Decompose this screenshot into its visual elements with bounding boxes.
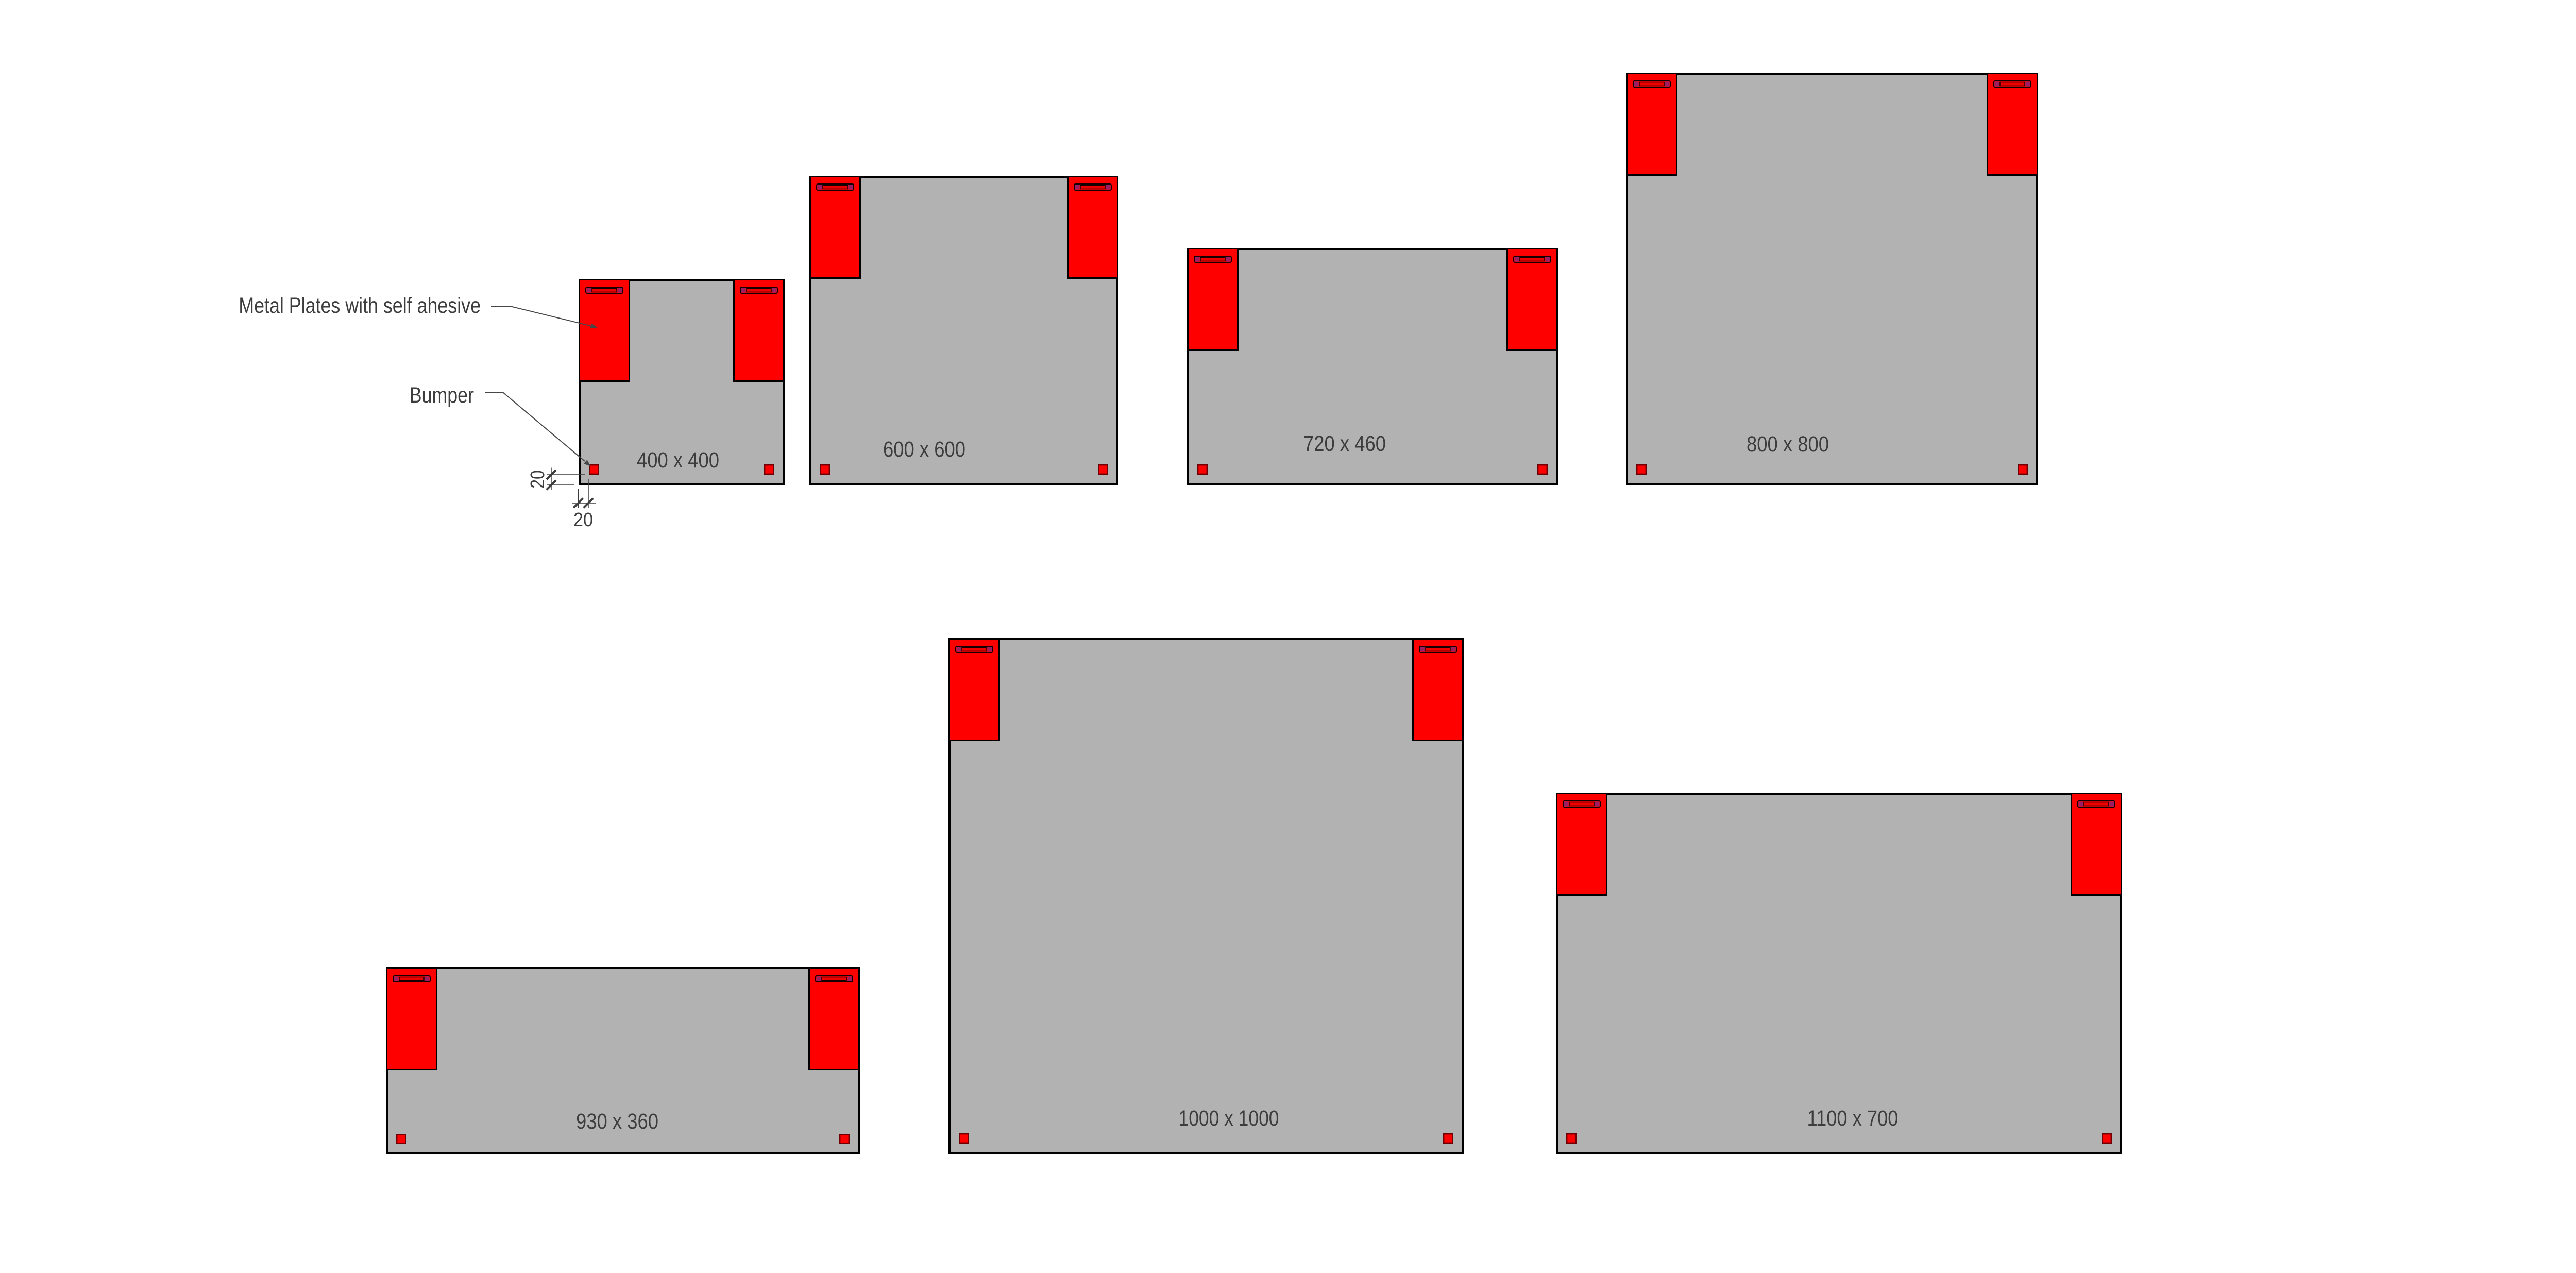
svg-text:20: 20	[527, 470, 548, 489]
svg-text:Metal Plates with self ahesive: Metal Plates with self ahesive	[239, 293, 481, 318]
svg-text:20: 20	[573, 508, 593, 530]
svg-text:400 x 400: 400 x 400	[637, 448, 719, 472]
svg-text:930 x 360: 930 x 360	[576, 1109, 658, 1133]
svg-text:800 x 800: 800 x 800	[1747, 432, 1829, 456]
svg-text:Bumper: Bumper	[410, 383, 474, 408]
svg-text:720 x 460: 720 x 460	[1303, 431, 1386, 456]
svg-text:1100 x 700: 1100 x 700	[1807, 1106, 1899, 1131]
svg-text:1000 x 1000: 1000 x 1000	[1179, 1106, 1279, 1131]
svg-text:600 x 600: 600 x 600	[883, 437, 965, 461]
